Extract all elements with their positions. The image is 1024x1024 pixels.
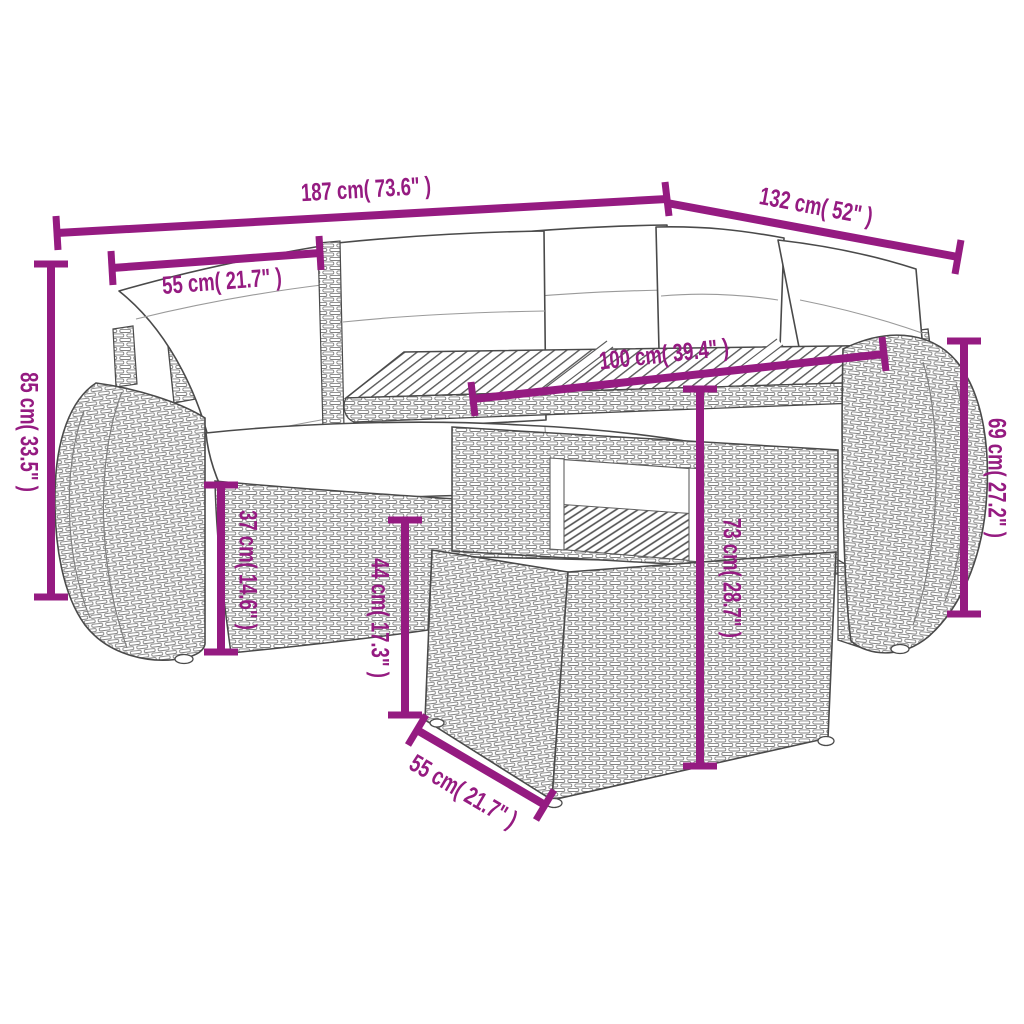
furniture-line-art [0, 0, 1024, 1024]
product-dimension-diagram: 187 cm( 73.6" ) 132 cm( 52" ) 55 cm( 21.… [0, 0, 1024, 1024]
sofa-foot [175, 655, 193, 664]
dim-label-total-height: 85 cm( 33.5" ) [14, 372, 43, 492]
dim-label-table-height: 69 cm( 27.2" ) [982, 418, 1011, 538]
ottoman-foot [430, 719, 444, 727]
left-arm-post [113, 326, 137, 387]
ottoman-left-face [425, 550, 568, 800]
dim-label-base-height: 73 cm( 28.7" ) [717, 518, 746, 638]
left-armrest [55, 383, 205, 660]
ottoman-foot [818, 737, 834, 746]
dim-label-seat-height: 37 cm( 14.6" ) [233, 510, 262, 630]
sofa-foot [891, 645, 909, 654]
dim-label-ottoman-height: 44 cm( 17.3" ) [365, 558, 394, 678]
table-leg-left [550, 458, 564, 550]
back-pillow-4 [656, 227, 784, 350]
